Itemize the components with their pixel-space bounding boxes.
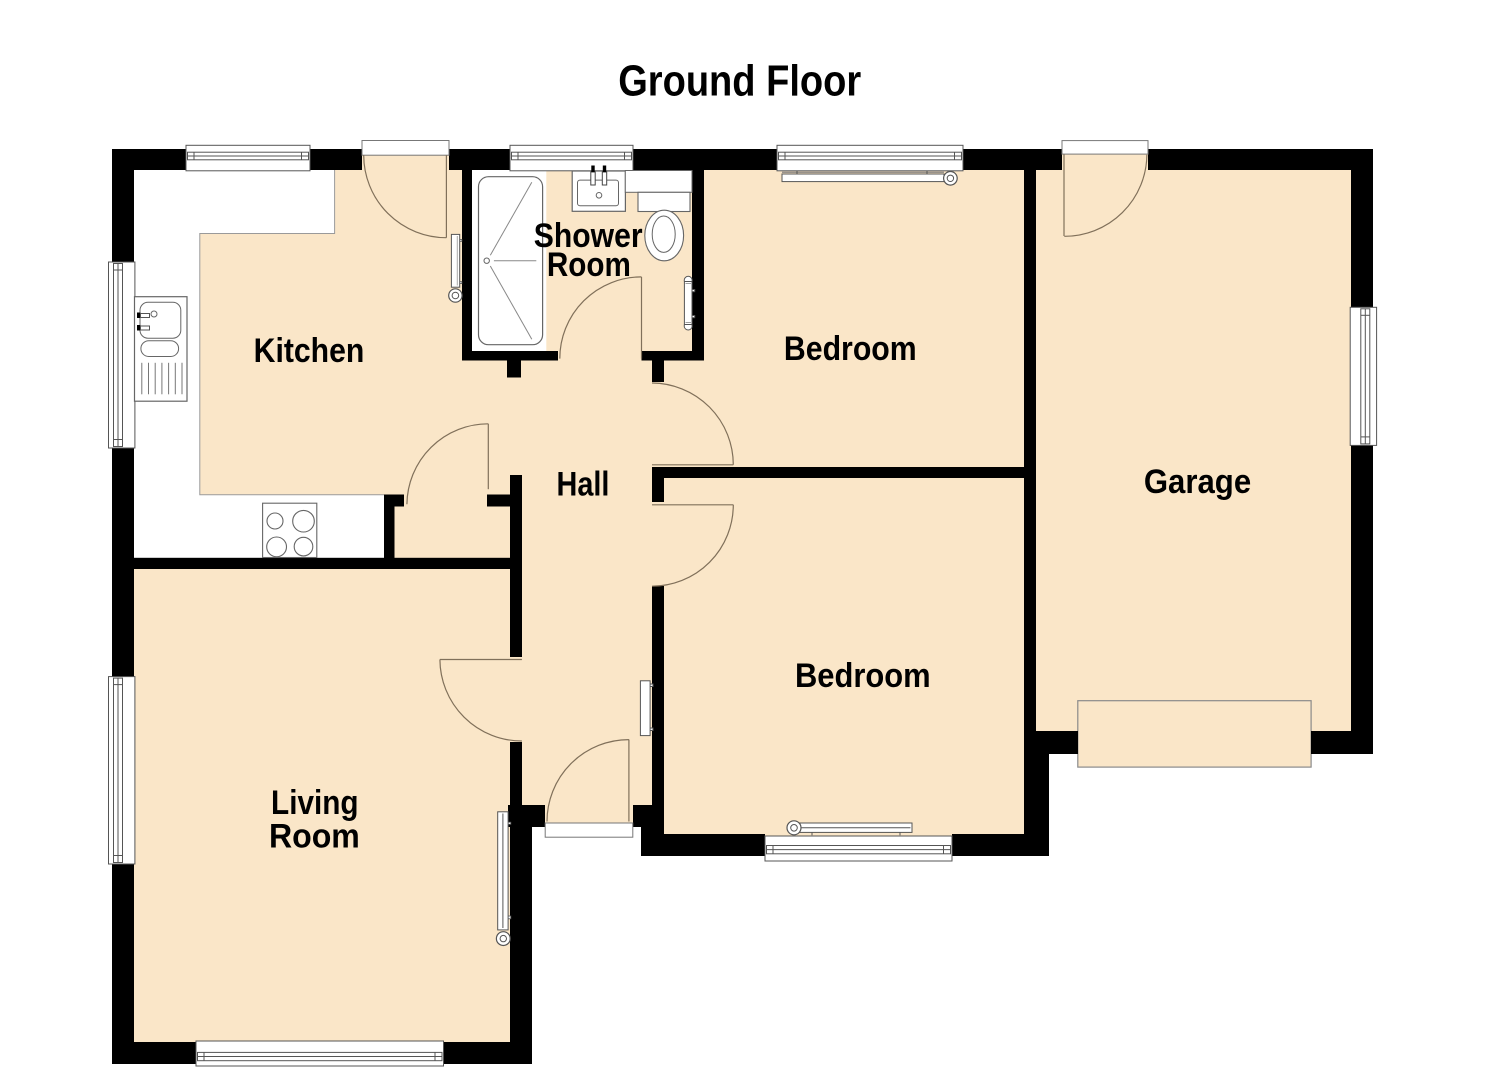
svg-text:Kitchen: Kitchen	[254, 332, 365, 370]
svg-text:Hall: Hall	[557, 466, 610, 504]
svg-text:Ground Floor: Ground Floor	[618, 56, 861, 105]
svg-text:Room: Room	[547, 246, 631, 284]
svg-text:Bedroom: Bedroom	[795, 657, 931, 695]
svg-text:Garage: Garage	[1144, 463, 1251, 501]
svg-text:Room: Room	[269, 817, 360, 855]
svg-text:Bedroom: Bedroom	[784, 330, 917, 368]
